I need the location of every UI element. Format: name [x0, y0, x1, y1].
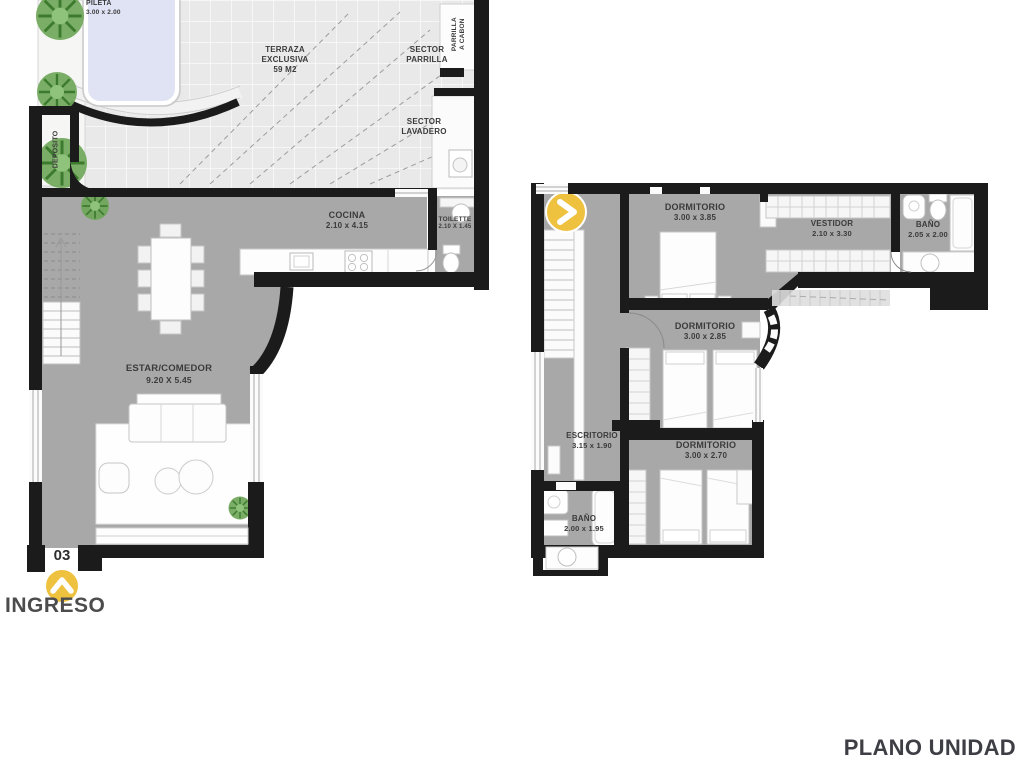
room-label-cocina: COCINA 2.10 x 4.15	[295, 210, 399, 231]
plant-palm-3	[37, 138, 87, 188]
level-marker	[546, 192, 586, 232]
unit-number: 03	[46, 547, 78, 564]
closet-dorm2	[626, 348, 650, 428]
kitchen-sink-icon	[290, 253, 313, 270]
armchair	[99, 463, 129, 493]
toilet-nook	[546, 547, 598, 569]
room-label-bano-2: BAÑO 2.00 x 1.95	[528, 514, 640, 533]
room-label-bano-suite: BAÑO 2.05 x 2.00	[888, 220, 968, 239]
room-label-vestidor: VESTIDOR 2.10 x 3.30	[774, 219, 890, 238]
ingreso-label: INGRESO	[5, 594, 115, 618]
room-label-escritorio: ESCRITORIO 3.15 x 1.90	[534, 431, 650, 450]
room-label-dormitorio-3: DORMITORIO 3.00 x 2.70	[648, 440, 764, 461]
coffee-table-small	[155, 468, 181, 494]
room-label-terraza: TERRAZA EXCLUSIVA 59 M2	[240, 45, 330, 75]
level-circle-icon	[546, 192, 586, 232]
page-title: PLANO UNIDAD	[818, 735, 1016, 761]
room-label-deposito: DEPOSITO	[53, 116, 62, 182]
desk-dorm3	[737, 470, 753, 504]
coffee-table-large	[179, 460, 213, 494]
sofa	[129, 394, 226, 442]
room-label-pileta: PILETA 3.00 x 2.00	[86, 0, 158, 17]
room-label-sector-lavadero: SECTOR LAVADERO	[380, 117, 468, 137]
lower-floor-plan	[27, 0, 489, 603]
wardrobe-top	[766, 196, 890, 218]
floor-plan-canvas: PILETA 3.00 x 2.00 TERRAZA EXCLUSIVA 59 …	[0, 0, 1024, 768]
stove-icon	[345, 251, 372, 273]
room-label-toilette: TOILETTE 2.10 X 1.45	[429, 216, 481, 232]
room-label-dormitorio-2: DORMITORIO 3.00 x 2.85	[647, 321, 763, 342]
bed-double	[660, 232, 716, 308]
room-label-estar-comedor: ESTAR/COMEDOR 9.20 X 5.45	[95, 363, 243, 386]
kitchen-counter	[240, 249, 428, 275]
wardrobe-bottom	[766, 250, 890, 272]
dining-table	[151, 238, 191, 320]
room-label-dormitorio-1: DORMITORIO 3.00 x 3.85	[637, 202, 753, 223]
room-label-parrilla-carbon: PARRILLA A CABON	[451, 2, 467, 66]
washing-machine-icon	[449, 150, 472, 177]
